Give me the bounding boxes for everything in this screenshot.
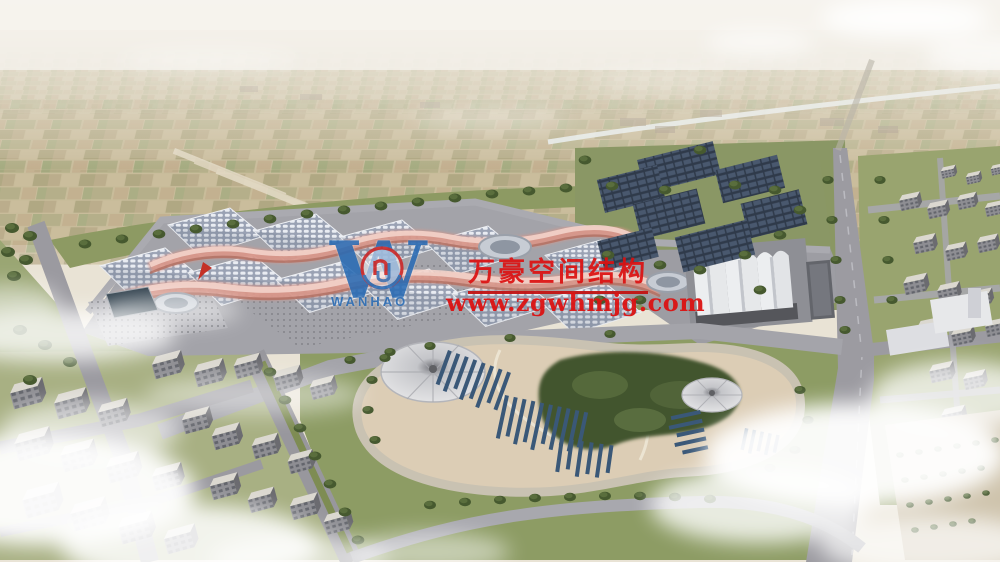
wanhao-logo-emblem-icon [359,245,405,291]
wanhao-logo-wordmark: WANHAO [331,294,427,309]
tent-structure-small [682,378,742,412]
watermark-website-url: www.zgwhmjg.com [446,288,705,317]
aerial-architectural-rendering: W WANHAO 万豪空间结构 www.zgwhmjg.com [0,0,1000,562]
wanhao-logo: W WANHAO [330,232,428,312]
